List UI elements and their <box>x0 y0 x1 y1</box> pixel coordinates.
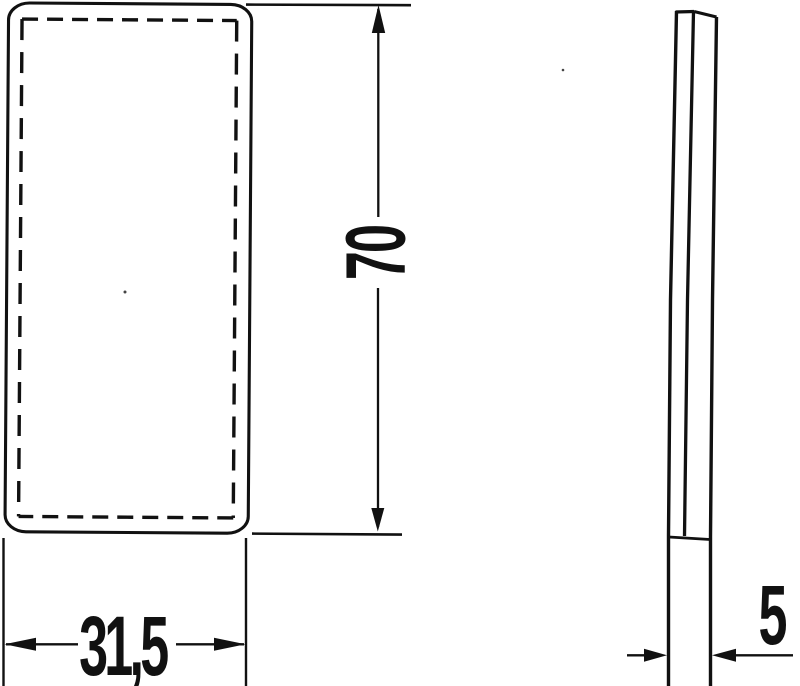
svg-text:5: 5 <box>759 568 788 662</box>
svg-text:70: 70 <box>329 226 423 280</box>
svg-text:31,5: 31,5 <box>79 599 168 686</box>
